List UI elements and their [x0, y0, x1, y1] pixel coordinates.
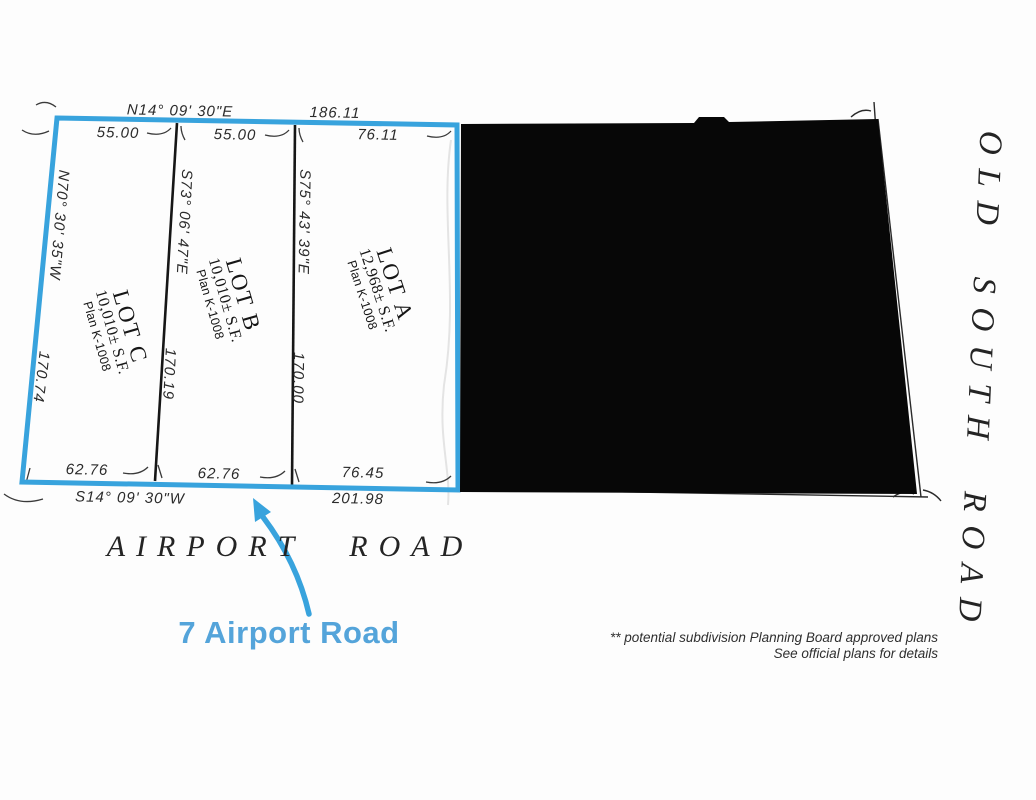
crease-artifact — [442, 140, 451, 505]
bottom-segment-label-2: 62.76 — [198, 465, 241, 483]
top-segment-label-3: 76.11 — [357, 126, 399, 144]
top-bearing-label: N14° 09' 30"E — [127, 101, 234, 120]
disclaimer-note: ** potential subdivision Planning Board … — [610, 630, 938, 662]
redaction-block — [460, 117, 917, 494]
lot-divider-line-ba — [292, 125, 295, 485]
lot-divider-line-cb — [155, 123, 177, 481]
bottom-total-label: 201.98 — [332, 490, 384, 508]
plat-drawing — [0, 0, 1036, 800]
annotation-label: 7 Airport Road — [178, 615, 399, 651]
top-total-label: 186.11 — [309, 104, 360, 122]
bottom-segment-label-3: 76.45 — [342, 464, 385, 482]
divider-bearing-label-2: S75° 43' 39"E — [295, 169, 314, 275]
plat-map: N14° 09' 30"E 186.11 55.00 55.00 76.11 N… — [0, 0, 1036, 800]
divider-length-label-2: 170.00 — [289, 352, 307, 404]
bottom-segment-label-1: 62.76 — [66, 461, 109, 479]
airport-road-label: AIRPORT ROAD — [107, 530, 474, 564]
top-segment-label-2: 55.00 — [214, 126, 257, 144]
divider-length-label-1: 170.19 — [159, 348, 179, 401]
disclaimer-line-1: ** potential subdivision Planning Board … — [610, 630, 938, 646]
bottom-bearing-label: S14° 09' 30"W — [75, 488, 185, 507]
top-segment-label-1: 55.00 — [97, 124, 140, 142]
disclaimer-line-2: See official plans for details — [610, 646, 938, 662]
